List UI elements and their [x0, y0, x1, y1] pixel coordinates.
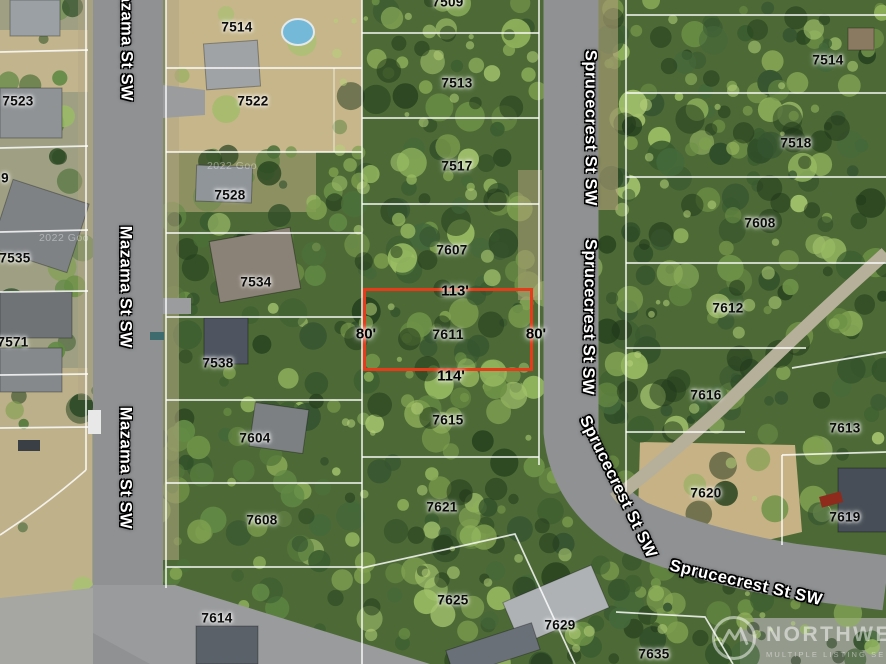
parcel-number-label: 7629 [544, 618, 575, 632]
street-name-label: Mazama St SW [118, 0, 135, 101]
imagery-credit: 2022 Goo [207, 161, 257, 172]
parcel-number-label: 7619 [829, 510, 860, 524]
nwmls-logo-icon [712, 616, 756, 660]
parcel-number-label: 7620 [690, 486, 721, 500]
dimension-label: 80' [356, 327, 376, 342]
parcel-number-label: 7517 [441, 159, 472, 173]
parcel-number-label: 7513 [441, 76, 472, 90]
parcel-number-label: 7608 [744, 216, 775, 230]
parcel-number-label: 7635 [638, 647, 669, 661]
street-name-label: Sprucecrest St SW [576, 413, 659, 561]
watermark-title: NORTHWEST [766, 623, 886, 647]
parcel-number-label: 7534 [240, 275, 271, 289]
parcel-number-label: 7616 [690, 388, 721, 402]
aerial-parcel-map: 7509751475147513752375227518751797528760… [0, 0, 886, 664]
street-name-label: Sprucecrest St SW [582, 50, 599, 206]
subject-parcel-number: 7611 [432, 327, 464, 341]
street-name-label: Sprucecrest St SW [579, 239, 598, 395]
parcel-number-label: 7604 [239, 431, 270, 445]
parcel-number-label: 7607 [436, 243, 467, 257]
street-name-label: Mazama St SW [117, 407, 134, 529]
parcel-number-label: 7612 [712, 301, 743, 315]
street-name-label: Mazama St SW [117, 226, 134, 348]
parcel-number-label: 7613 [829, 421, 860, 435]
parcel-number-label: 7509 [432, 0, 463, 9]
dimension-label: 114' [437, 369, 465, 384]
parcel-number-label: 7514 [812, 53, 843, 67]
dimension-label: 80' [526, 327, 546, 342]
parcel-number-label: 7614 [201, 611, 232, 625]
parcel-number-label: 7522 [237, 94, 268, 108]
parcel-number-label: 7535 [0, 251, 31, 265]
parcel-number-label: 7523 [2, 94, 33, 108]
parcel-number-label: 7571 [0, 335, 29, 349]
parcel-number-label: 7608 [246, 513, 277, 527]
map-labels-layer: 7509751475147513752375227518751797528760… [0, 0, 886, 664]
parcel-number-label: 7514 [221, 20, 252, 34]
parcel-number-label: 9 [1, 171, 9, 185]
street-name-label: Sprucecrest St SW [668, 557, 824, 608]
parcel-number-label: 7538 [202, 356, 233, 370]
parcel-number-label: 7621 [426, 500, 457, 514]
nwmls-watermark: NORTHWEST MULTIPLE LISTING SERVICE [712, 616, 886, 660]
parcel-number-label: 7615 [432, 413, 463, 427]
parcel-number-label: 7518 [780, 136, 811, 150]
dimension-label: 113' [441, 284, 469, 299]
parcel-number-label: 7528 [214, 188, 245, 202]
watermark-subtitle: MULTIPLE LISTING SERVICE [766, 650, 886, 659]
parcel-number-label: 7625 [437, 593, 468, 607]
imagery-credit: 2022 Goo [39, 233, 89, 244]
